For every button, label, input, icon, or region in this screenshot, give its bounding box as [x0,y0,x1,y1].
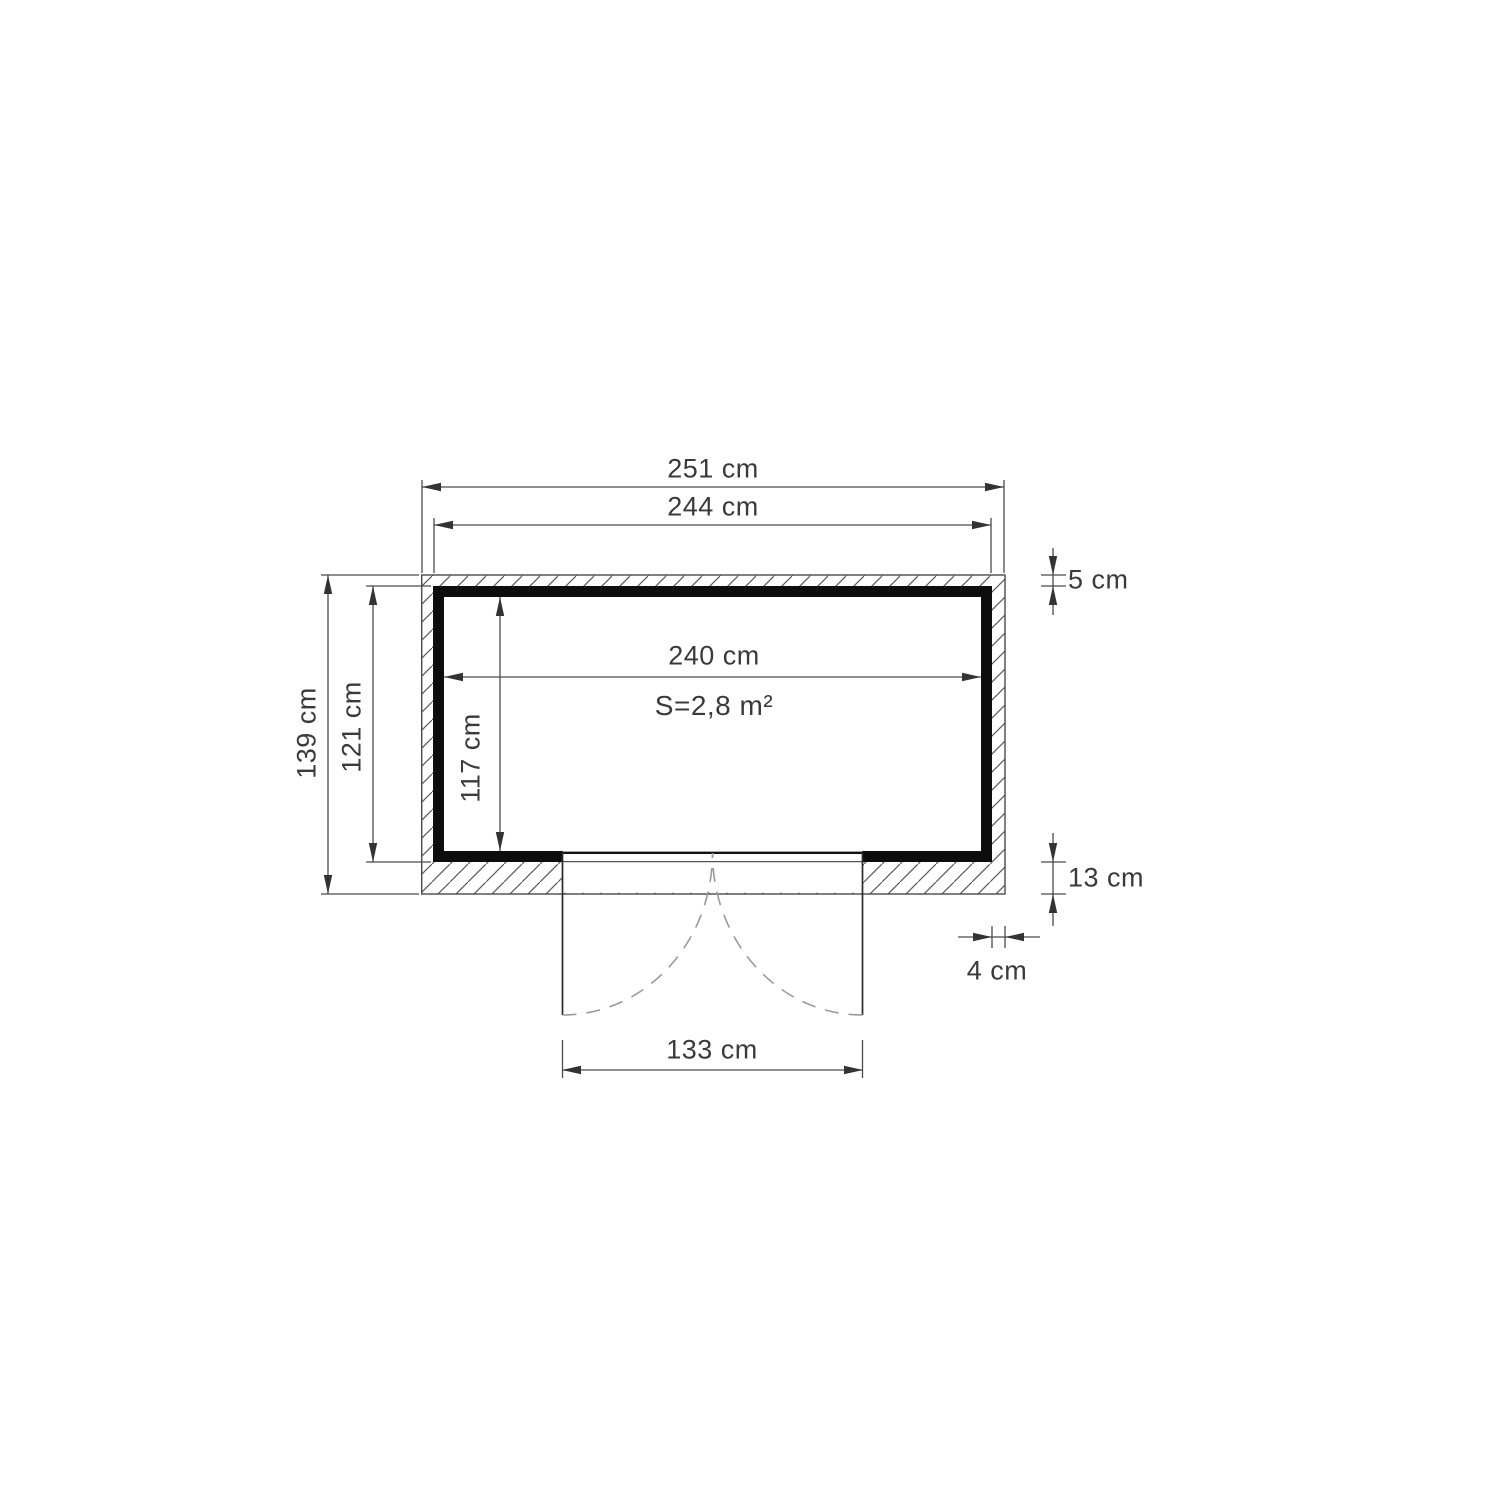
dim-label-door-width: 133 cm [666,1035,758,1066]
dim-overhang-side [958,926,1040,948]
dim-label-frame-depth: 121 cm [337,681,368,773]
dim-label-overall-width: 251 cm [667,454,759,485]
dim-label-interior-width: 240 cm [668,641,760,672]
dim-overhang-bottom [1041,833,1066,926]
wall-outline [433,586,992,862]
dim-label-interior-depth: 117 cm [456,713,487,803]
dim-frame-width [434,518,991,573]
floor-plan-drawing [0,0,1500,1500]
dim-label-overhang-side: 4 cm [967,956,1028,987]
floor-plan-page: 251 cm 244 cm 240 cm S=2,8 m² 117 cm 121… [0,0,1500,1500]
area-label: S=2,8 m² [655,690,773,722]
door-opening [562,848,863,1015]
dim-label-overall-depth: 139 cm [292,687,323,779]
dim-label-overhang-top: 5 cm [1068,565,1129,596]
dim-label-frame-width: 244 cm [667,492,759,523]
dim-overhang-top [1041,548,1066,615]
dim-label-overhang-bottom: 13 cm [1068,863,1144,894]
